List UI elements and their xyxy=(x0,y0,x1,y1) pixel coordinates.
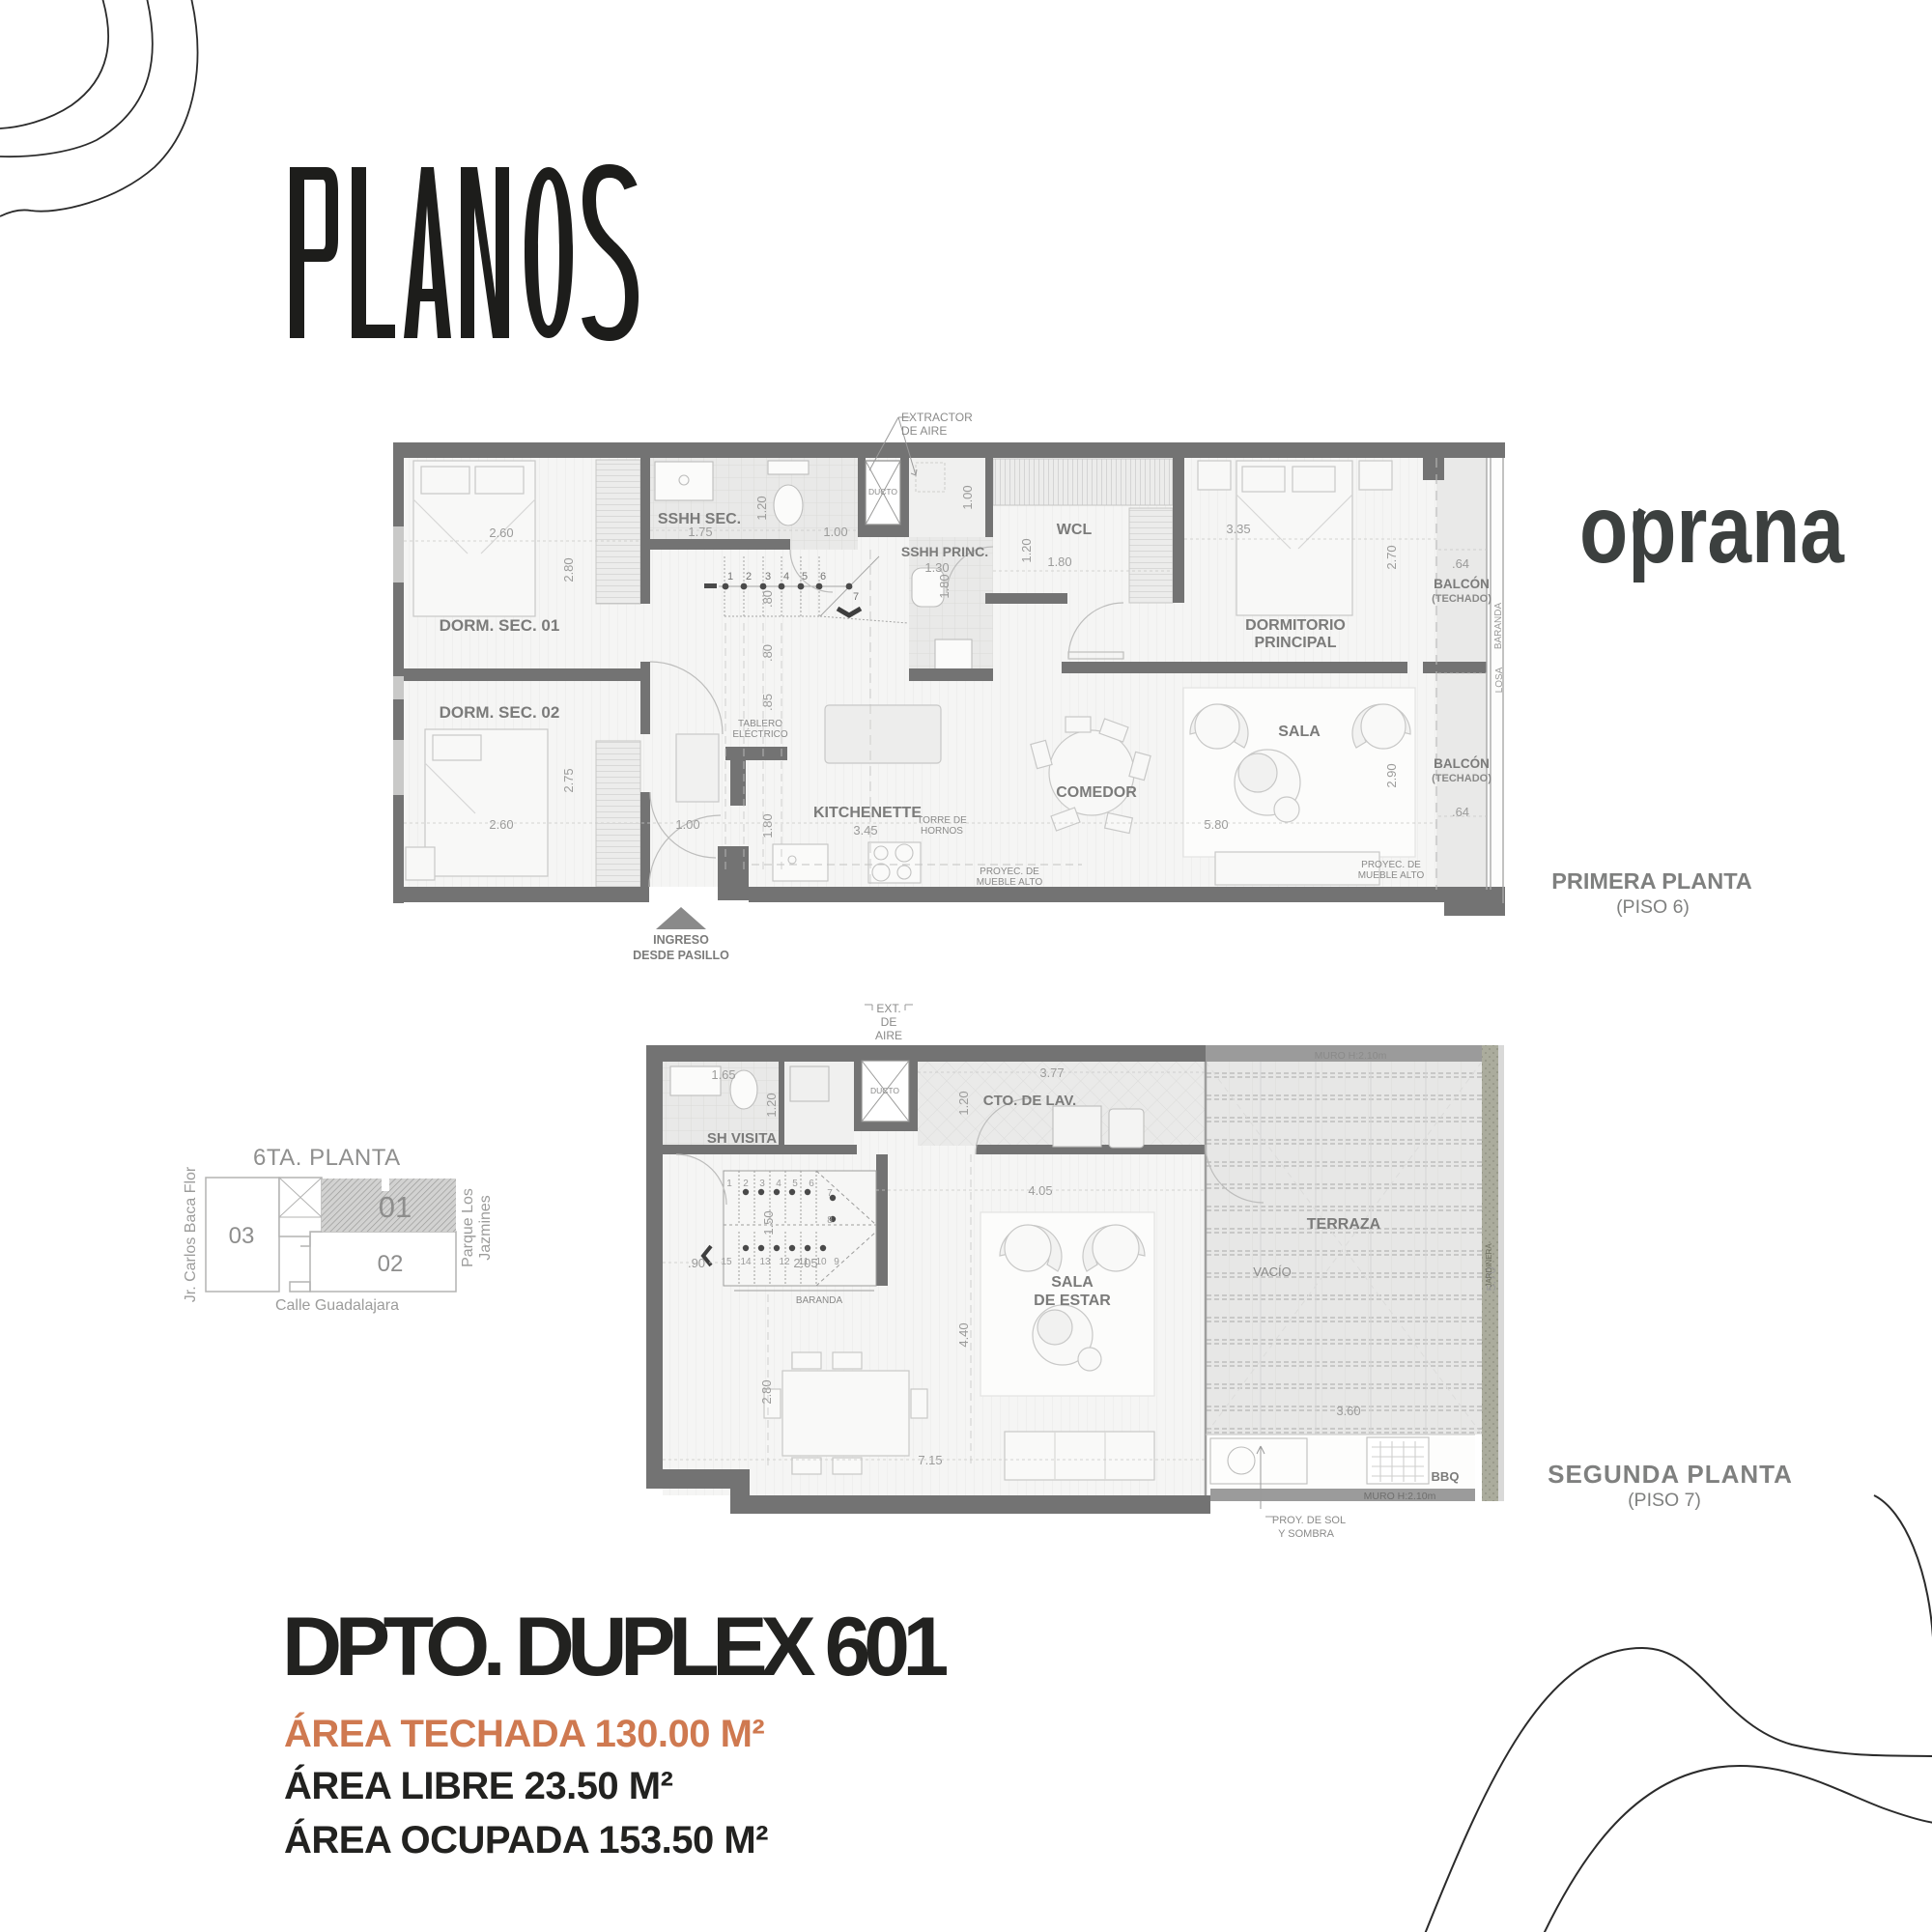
svg-text:1.00: 1.00 xyxy=(960,485,975,509)
svg-text:.64: .64 xyxy=(1452,556,1469,571)
svg-text:5: 5 xyxy=(802,571,808,582)
svg-text:2.60: 2.60 xyxy=(489,526,513,540)
svg-text:3.35: 3.35 xyxy=(1226,522,1250,536)
svg-text:CTO. DE LAV.: CTO. DE LAV. xyxy=(983,1093,1076,1109)
svg-text:DESDE PASILLO: DESDE PASILLO xyxy=(633,949,729,962)
svg-text:7: 7 xyxy=(827,1188,833,1199)
svg-text:Jazmines: Jazmines xyxy=(477,1195,494,1261)
svg-text:15: 15 xyxy=(721,1257,732,1267)
svg-text:8: 8 xyxy=(827,1215,833,1226)
svg-text:VACÍO: VACÍO xyxy=(1253,1264,1292,1279)
svg-text:2.70: 2.70 xyxy=(1384,545,1399,569)
svg-text:10: 10 xyxy=(815,1257,827,1267)
svg-text:PROY. DE SOL: PROY. DE SOL xyxy=(1272,1515,1346,1526)
svg-text:2.80: 2.80 xyxy=(759,1379,774,1404)
svg-text:1.00: 1.00 xyxy=(675,817,699,832)
svg-text:BALCÓN: BALCÓN xyxy=(1434,756,1490,771)
svg-text:ÁREA OCUPADA 153.50 M²: ÁREA OCUPADA 153.50 M² xyxy=(284,1818,768,1861)
svg-text:1: 1 xyxy=(726,1179,732,1189)
svg-text:PROYEC. DE: PROYEC. DE xyxy=(980,867,1039,877)
svg-text:7.15: 7.15 xyxy=(918,1453,942,1467)
svg-text:DUCTO: DUCTO xyxy=(870,1086,899,1095)
svg-text:TABLERO: TABLERO xyxy=(738,719,782,729)
svg-text:12: 12 xyxy=(779,1257,790,1267)
svg-text:11: 11 xyxy=(799,1257,810,1267)
svg-text:9: 9 xyxy=(834,1257,839,1267)
svg-text:LOSA: LOSA xyxy=(1494,667,1505,693)
svg-text:MURO H:2.10m: MURO H:2.10m xyxy=(1364,1491,1436,1502)
svg-text:TORRE DE: TORRE DE xyxy=(917,815,967,826)
svg-text:1.80: 1.80 xyxy=(760,813,775,838)
svg-text:.64: .64 xyxy=(1452,805,1469,819)
svg-text:1.50: 1.50 xyxy=(761,1210,776,1235)
svg-text:Y SOMBRA: Y SOMBRA xyxy=(1278,1528,1335,1540)
svg-text:.90: .90 xyxy=(688,1256,705,1270)
svg-text:1.20: 1.20 xyxy=(956,1091,971,1115)
svg-text:BARANDA: BARANDA xyxy=(1493,603,1504,650)
svg-text:SALA: SALA xyxy=(1051,1274,1094,1291)
svg-text:DORM. SEC. 02: DORM. SEC. 02 xyxy=(440,703,560,722)
svg-text:.85: .85 xyxy=(760,694,775,711)
svg-text:4.05: 4.05 xyxy=(1028,1183,1052,1198)
svg-text:JARDINERA: JARDINERA xyxy=(1485,1243,1493,1288)
svg-text:01: 01 xyxy=(379,1190,412,1224)
svg-text:6: 6 xyxy=(809,1179,814,1189)
svg-text:Calle Guadalajara: Calle Guadalajara xyxy=(275,1297,399,1314)
svg-text:3.77: 3.77 xyxy=(1039,1065,1064,1080)
svg-text:SH VISITA: SH VISITA xyxy=(707,1130,777,1147)
svg-text:1.80: 1.80 xyxy=(937,574,952,598)
svg-text:4.40: 4.40 xyxy=(956,1322,971,1347)
svg-text:6: 6 xyxy=(820,571,826,582)
svg-text:5: 5 xyxy=(792,1179,798,1189)
svg-text:MUEBLE ALTO: MUEBLE ALTO xyxy=(1358,870,1425,881)
svg-text:3: 3 xyxy=(765,571,771,582)
svg-text:SALA: SALA xyxy=(1278,724,1321,740)
svg-text:1.20: 1.20 xyxy=(1019,538,1034,562)
svg-text:03: 03 xyxy=(229,1223,255,1249)
svg-text:7: 7 xyxy=(853,591,859,603)
svg-text:1.30: 1.30 xyxy=(924,560,949,575)
svg-text:Jr. Carlos Baca Flor: Jr. Carlos Baca Flor xyxy=(183,1166,199,1302)
svg-text:3.60: 3.60 xyxy=(1336,1404,1360,1418)
svg-text:14: 14 xyxy=(740,1257,752,1267)
svg-text:ÁREA TECHADA 130.00 M²: ÁREA TECHADA 130.00 M² xyxy=(284,1712,764,1755)
svg-text:1.65: 1.65 xyxy=(711,1067,735,1082)
svg-text:EXT.: EXT. xyxy=(876,1002,900,1015)
svg-text:PRIMERA PLANTA: PRIMERA PLANTA xyxy=(1551,868,1752,894)
svg-text:TERRAZA: TERRAZA xyxy=(1307,1216,1381,1233)
svg-text:1.20: 1.20 xyxy=(764,1093,779,1117)
svg-text:(TECHADO): (TECHADO) xyxy=(1432,773,1492,784)
svg-text:PRINCIPAL: PRINCIPAL xyxy=(1254,635,1336,651)
svg-text:2: 2 xyxy=(743,1179,749,1189)
svg-text:BALCÓN: BALCÓN xyxy=(1434,577,1490,591)
svg-text:DPTO. DUPLEX 601: DPTO. DUPLEX 601 xyxy=(282,1601,948,1693)
svg-text:SSHH PRINC.: SSHH PRINC. xyxy=(901,544,988,559)
svg-text:(TECHADO): (TECHADO) xyxy=(1432,593,1492,605)
svg-text:EXTRACTOR: EXTRACTOR xyxy=(901,411,973,424)
svg-text:SEGUNDA PLANTA: SEGUNDA PLANTA xyxy=(1548,1460,1793,1489)
svg-text:DE: DE xyxy=(881,1015,897,1029)
svg-text:2: 2 xyxy=(746,571,752,582)
svg-text:2.90: 2.90 xyxy=(1384,763,1399,787)
svg-text:2.75: 2.75 xyxy=(561,768,576,792)
svg-text:2.80: 2.80 xyxy=(561,557,576,582)
svg-text:4: 4 xyxy=(776,1179,781,1189)
svg-text:1.00: 1.00 xyxy=(823,525,847,539)
svg-text:AIRE: AIRE xyxy=(875,1029,902,1042)
svg-text:INGRESO: INGRESO xyxy=(653,933,709,947)
svg-text:3.45: 3.45 xyxy=(853,823,877,838)
svg-text:DUCTO: DUCTO xyxy=(868,487,897,497)
svg-text:BARANDA: BARANDA xyxy=(796,1295,843,1306)
svg-text:3: 3 xyxy=(759,1179,765,1189)
svg-text:.80: .80 xyxy=(760,644,775,662)
svg-text:HORNOS: HORNOS xyxy=(921,826,963,837)
svg-text:PROYEC. DE: PROYEC. DE xyxy=(1361,860,1421,870)
svg-text:6TA. PLANTA: 6TA. PLANTA xyxy=(253,1145,401,1171)
svg-text:(PISO 7): (PISO 7) xyxy=(1628,1490,1701,1511)
svg-text:MUEBLE ALTO: MUEBLE ALTO xyxy=(977,877,1043,888)
svg-text:Parque Los: Parque Los xyxy=(460,1188,476,1267)
svg-text:13: 13 xyxy=(759,1257,771,1267)
svg-text:KITCHENETTE: KITCHENETTE xyxy=(813,805,922,821)
svg-text:2.60: 2.60 xyxy=(489,817,513,832)
svg-text:5.80: 5.80 xyxy=(1204,817,1228,832)
svg-text:.80: .80 xyxy=(760,590,775,608)
svg-text:DE ESTAR: DE ESTAR xyxy=(1034,1293,1111,1309)
svg-text:DORMITORIO: DORMITORIO xyxy=(1245,617,1346,634)
svg-text:02: 02 xyxy=(378,1251,404,1277)
svg-text:1.75: 1.75 xyxy=(688,525,712,539)
svg-text:1: 1 xyxy=(727,571,733,582)
svg-text:DORM. SEC. 01: DORM. SEC. 01 xyxy=(440,616,560,635)
svg-text:ELÉCTRICO: ELÉCTRICO xyxy=(732,727,787,740)
svg-text:COMEDOR: COMEDOR xyxy=(1056,784,1137,801)
svg-text:(PISO 6): (PISO 6) xyxy=(1616,896,1690,918)
svg-text:1.20: 1.20 xyxy=(754,496,769,520)
svg-text:oprana: oprana xyxy=(1579,475,1845,582)
svg-text:DE AIRE: DE AIRE xyxy=(901,424,947,438)
svg-text:ÁREA LIBRE 23.50 M²: ÁREA LIBRE 23.50 M² xyxy=(284,1764,673,1807)
svg-text:1.80: 1.80 xyxy=(1047,554,1071,569)
svg-text:MURO H:2.10m: MURO H:2.10m xyxy=(1315,1050,1387,1062)
svg-text:WCL: WCL xyxy=(1057,522,1093,538)
svg-text:BBQ: BBQ xyxy=(1432,1469,1460,1484)
svg-text:4: 4 xyxy=(783,571,789,582)
